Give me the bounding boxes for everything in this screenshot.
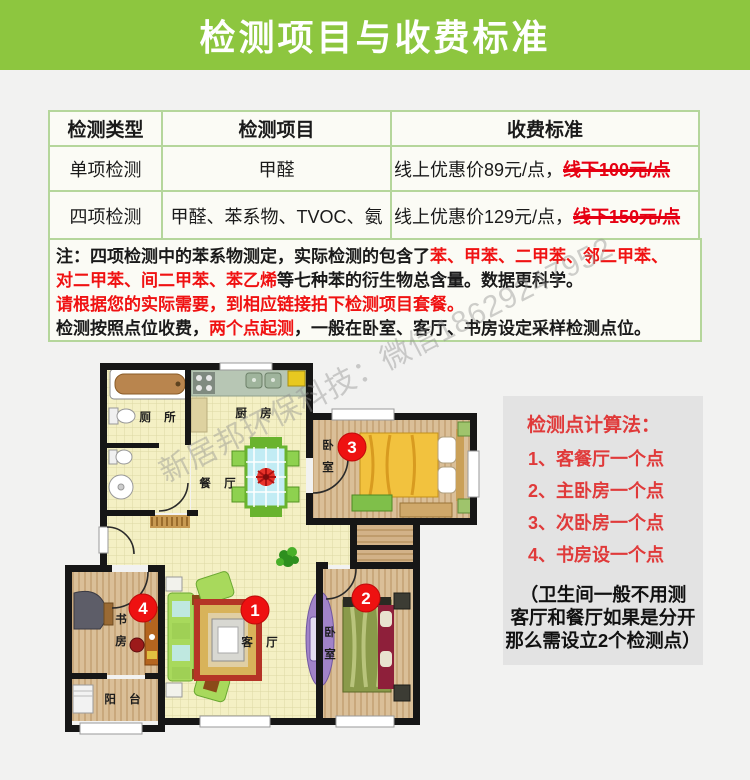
cell-fee: 线上优惠价129元/点，线下150元/点 [391, 191, 699, 241]
calc-panel-title: 检测点计算法： [527, 410, 703, 437]
note-line: 请根据您的实际需要，到相应链接拍下检测项目套餐。 [56, 293, 696, 317]
svg-text:书: 书 [115, 612, 127, 626]
calc-footnote: （卫生间一般不用测 客厅和餐厅如果是分开 那么需设立2个检测点） [503, 583, 703, 652]
fee-online: 线上优惠价89元/点， [394, 160, 563, 180]
calc-item-4: 4、书房设一个点 [528, 539, 703, 571]
note-text-red: 两个点起测 [209, 319, 294, 338]
fee-table: 检测类型 检测项目 收费标准 单项检测 甲醛 线上优惠价89元/点，线下100元… [48, 110, 700, 242]
svg-text:1: 1 [250, 601, 259, 620]
room-label-toilet: 厕 所 [139, 410, 180, 424]
page-title: 检测项目与收费标准 [199, 9, 550, 61]
bidet-icon [109, 450, 132, 464]
calc-item-3: 3、次卧房一个点 [528, 507, 703, 539]
note-line: 注：四项检测中的苯系物测定，实际检测的包含了苯、甲苯、二甲苯、邻二甲苯、 [56, 245, 696, 269]
nightstand-icon [394, 685, 410, 701]
marker-point-2: 2 [352, 584, 380, 612]
cell-type: 四项检测 [49, 191, 162, 241]
bathtub-icon [110, 369, 190, 399]
note-line: 对二甲苯、间二甲苯、苯乙烯等七种苯的衍生物总含量。数据更科学。 [56, 269, 696, 293]
note-text: 注：四项检测中的苯系物测定，实际检测的包含了 [56, 247, 430, 266]
note-text-red: 请根据您的实际需要，到相应链接拍下检测项目套餐。 [56, 295, 464, 314]
room-label-living: 客 厅 [240, 635, 282, 649]
rug-icon [352, 495, 392, 511]
table-row: 四项检测 甲醛、苯系物、TVOC、氨 线上优惠价129元/点，线下150元/点 [49, 191, 699, 241]
svg-text:卧: 卧 [324, 626, 336, 639]
svg-text:2: 2 [361, 589, 370, 608]
nightstand-icon [458, 422, 472, 436]
calc-item-1: 1、客餐厅一个点 [528, 443, 703, 475]
col-header-type: 检测类型 [49, 111, 162, 146]
note-text-red: 对二甲苯、间二甲苯、苯乙烯 [56, 271, 277, 290]
svg-text:3: 3 [347, 438, 356, 457]
svg-text:房: 房 [115, 634, 127, 648]
toilet-icon [109, 408, 135, 424]
nightstand-icon [394, 593, 410, 609]
page-header: 检测项目与收费标准 [0, 0, 750, 70]
dresser-icon [400, 503, 452, 517]
note-text: 等七种苯的衍生物总含量。数据更科学。 [277, 271, 583, 290]
footnote-line: （卫生间一般不用测 [503, 583, 703, 606]
chair-icon [130, 638, 144, 652]
room-label-balcony: 阳 台 [104, 692, 145, 706]
table-row: 单项检测 甲醛 线上优惠价89元/点，线下100元/点 [49, 146, 699, 191]
marker-point-3: 3 [338, 433, 366, 461]
fee-online: 线上优惠价129元/点， [394, 207, 573, 227]
nightstand-icon [458, 499, 472, 513]
svg-text:卧: 卧 [322, 439, 334, 452]
cell-type: 单项检测 [49, 146, 162, 191]
svg-text:室: 室 [322, 460, 334, 474]
svg-text:室: 室 [324, 647, 336, 661]
room-label-dining: 餐 厅 [198, 476, 240, 490]
fee-offline-struck: 线下150元/点 [573, 207, 680, 227]
note-line: 检测按照点位收费，两个点起测，一般在卧室、客厅、书房设定采样检测点位。 [56, 317, 696, 341]
col-header-items: 检测项目 [162, 111, 391, 146]
cell-fee: 线上优惠价89元/点，线下100元/点 [391, 146, 699, 191]
page: { "header": { "title": "检测项目与收费标准", "bg_… [0, 0, 750, 780]
washing-machine-icon [73, 685, 93, 713]
calc-item-2: 2、主卧房一个点 [528, 475, 703, 507]
table-header-row: 检测类型 检测项目 收费标准 [49, 111, 699, 146]
note-text: 检测按照点位收费， [56, 319, 209, 338]
cell-items: 甲醛 [162, 146, 391, 191]
svg-text:4: 4 [138, 599, 148, 618]
note-text-red: 苯、甲苯、二甲苯、邻二甲苯、 [430, 247, 668, 266]
calc-panel: 检测点计算法： 1、客餐厅一个点 2、主卧房一个点 3、次卧房一个点 4、书房设… [503, 396, 703, 665]
doormat [150, 515, 190, 528]
footnote-line: 客厅和餐厅如果是分开 [503, 606, 703, 629]
marker-point-4: 4 [129, 594, 157, 622]
note-box: 注：四项检测中的苯系物测定，实际检测的包含了苯、甲苯、二甲苯、邻二甲苯、 对二甲… [48, 238, 702, 342]
room-label-kitchen: 厨 房 [235, 406, 276, 420]
footnote-line: 那么需设立2个检测点） [503, 629, 703, 652]
cell-items: 甲醛、苯系物、TVOC、氨 [162, 191, 391, 241]
note-text: ，一般在卧室、客厅、书房设定采样检测点位。 [294, 319, 651, 338]
fee-offline-struck: 线下100元/点 [563, 160, 670, 180]
col-header-fee: 收费标准 [391, 111, 699, 146]
bathroom-divider-wall [107, 443, 159, 448]
sink-icon [109, 475, 133, 499]
floorplan-image: 厕 所 厨 房 餐 厅 客 厅 阳 台 卧 室 卧 室 书 房 1 2 3 4 [60, 355, 480, 735]
marker-point-1: 1 [241, 596, 269, 624]
